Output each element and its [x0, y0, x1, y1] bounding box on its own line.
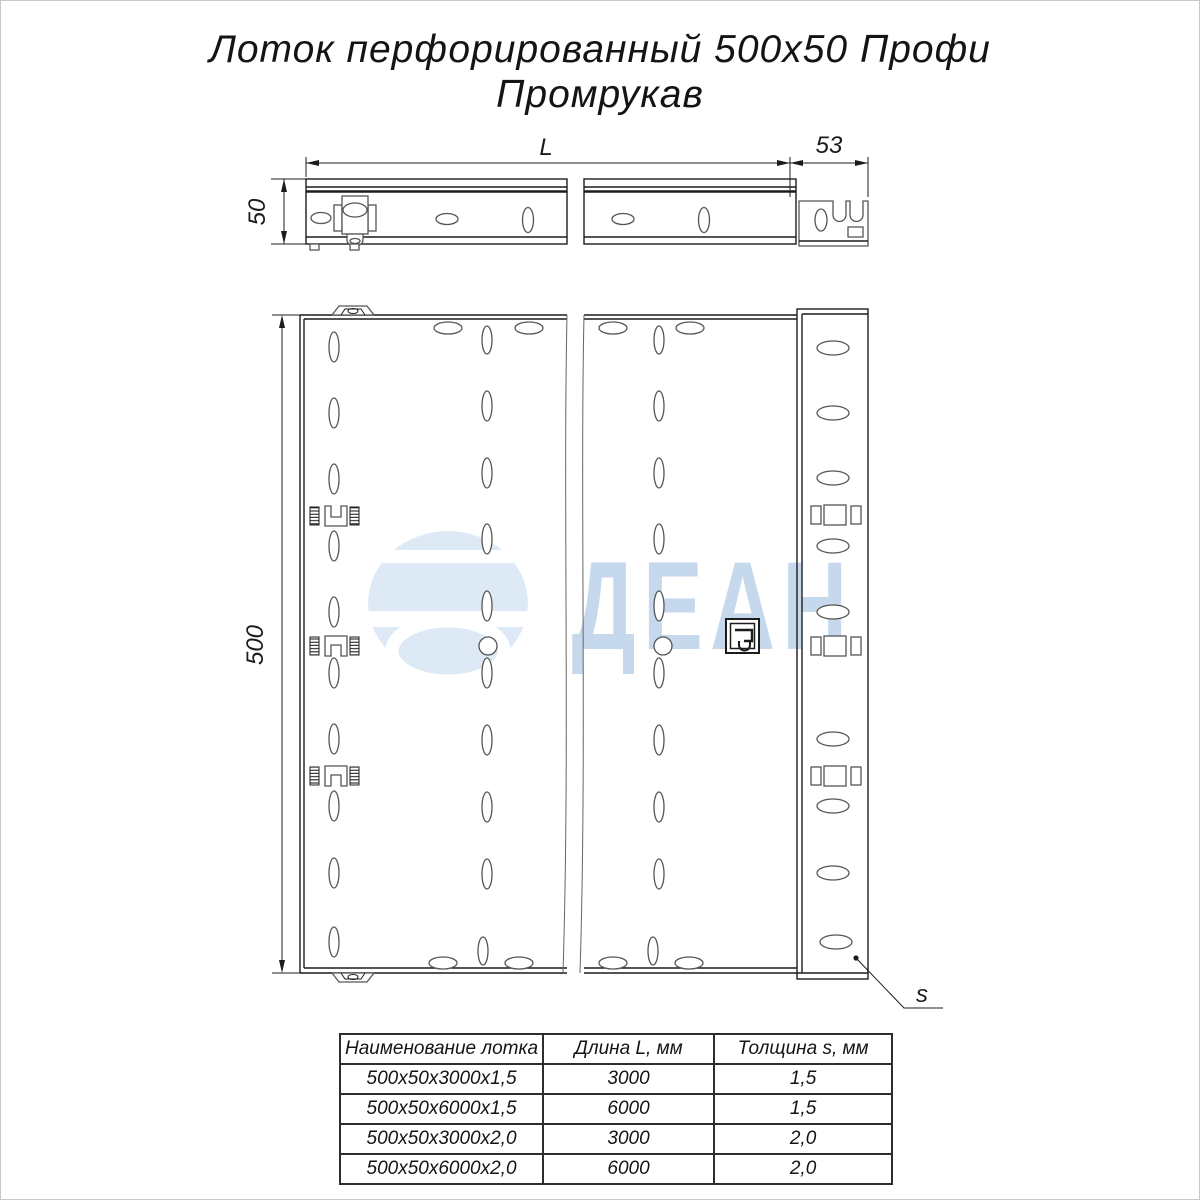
fastener-clip-top — [332, 306, 374, 315]
dimension-53-label: 53 — [816, 132, 843, 159]
cell-thickness: 2,0 — [714, 1154, 892, 1184]
size-table: Наименование лотка Длина L, мм Толщина s… — [339, 1033, 893, 1185]
cell-length: 6000 — [543, 1154, 714, 1184]
plan-dimension-lines — [272, 315, 300, 973]
table-row: 500х50х3000х1,5 3000 1,5 — [340, 1064, 892, 1094]
watermark: ДЕАН — [361, 531, 854, 681]
side-view: L 53 50 — [244, 132, 868, 250]
round-hole — [479, 637, 497, 655]
table-header-row: Наименование лотка Длина L, мм Толщина s… — [340, 1034, 892, 1064]
dimension-50-label: 50 — [244, 198, 271, 225]
cell-thickness: 1,5 — [714, 1094, 892, 1124]
table-row: 500х50х3000х2,0 3000 2,0 — [340, 1124, 892, 1154]
technical-drawing: L 53 50 ДЕАН — [1, 1, 1200, 1200]
dimension-500-label: 500 — [242, 624, 269, 665]
cell-length: 6000 — [543, 1094, 714, 1124]
end-connector — [799, 201, 868, 246]
cell-length: 3000 — [543, 1064, 714, 1094]
table-row: 500х50х6000х2,0 6000 2,0 — [340, 1154, 892, 1184]
fastener-clip-bottom — [332, 973, 374, 982]
cell-thickness: 2,0 — [714, 1124, 892, 1154]
dimension-s-label: s — [916, 981, 928, 1008]
plan-view: ДЕАН — [242, 306, 943, 1008]
cell-tray-name: 500х50х3000х2,0 — [340, 1124, 543, 1154]
cell-tray-name: 500х50х6000х1,5 — [340, 1094, 543, 1124]
table-row: 500х50х6000х1,5 6000 1,5 — [340, 1094, 892, 1124]
table-header-name: Наименование лотка — [340, 1034, 543, 1064]
cell-length: 3000 — [543, 1124, 714, 1154]
drawing-page: Лоток перфорированный 500х50 Профи Промр… — [0, 0, 1200, 1200]
cell-thickness: 1,5 — [714, 1064, 892, 1094]
cell-tray-name: 500х50х6000х2,0 — [340, 1154, 543, 1184]
brand-stamp-icon — [726, 619, 759, 653]
mount-foot — [350, 244, 359, 250]
table-header-thickness: Толщина s, мм — [714, 1034, 892, 1064]
mount-foot — [310, 244, 319, 250]
table-header-length: Длина L, мм — [543, 1034, 714, 1064]
cell-tray-name: 500х50х3000х1,5 — [340, 1064, 543, 1094]
round-hole — [654, 637, 672, 655]
dimension-L-label: L — [539, 134, 552, 161]
